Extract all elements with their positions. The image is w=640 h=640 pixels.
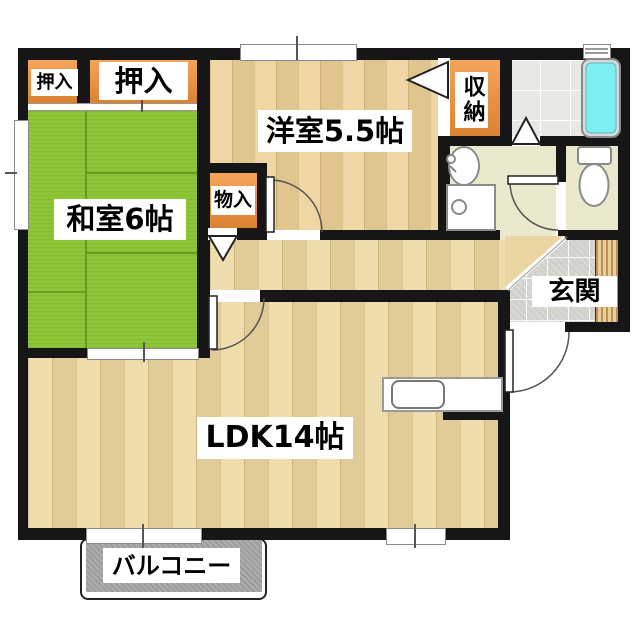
- wall-closet-divider: [77, 48, 90, 108]
- shuunou-doorway: [438, 58, 450, 136]
- hallway-floor: [210, 236, 505, 290]
- wall-washitsu-right: [197, 48, 210, 358]
- floor-plan: 押入 押入 和室6帖 洋室5.5帖 物入 収納 玄関 LDK14帖 バルコニー: [0, 0, 640, 640]
- wall-monoire-bottom: [237, 228, 267, 240]
- wall-washitsu-bottom: [18, 348, 87, 358]
- wall-toilet-bottom: [558, 230, 630, 240]
- label-balcony: バルコニー: [103, 548, 240, 583]
- toilet-doorway: [556, 182, 566, 230]
- window-top: [240, 44, 357, 61]
- tatami-line: [85, 252, 197, 254]
- label-oshiire-large: 押入: [99, 62, 188, 100]
- louver-window-bath: [583, 44, 611, 59]
- tatami-line: [85, 172, 197, 174]
- youshitsu-doorway: [267, 230, 320, 240]
- wall-shuunou-bath: [500, 48, 512, 146]
- window-left: [14, 120, 29, 230]
- label-shuunou: 収納: [455, 72, 488, 128]
- wall-toilet-left: [556, 143, 566, 182]
- label-oshiire-small: 押入: [31, 69, 78, 96]
- toilet-floor: [566, 146, 618, 230]
- label-washitsu: 和室6帖: [54, 199, 186, 240]
- wall-kitchen-stub: [443, 412, 502, 420]
- label-ldk: LDK14帖: [197, 417, 353, 459]
- window-balcony: [86, 528, 202, 544]
- entrance-doorway: [512, 322, 565, 332]
- ldk-doorway: [210, 290, 260, 302]
- washroom-floor: [450, 146, 556, 230]
- tatami-line: [28, 291, 85, 293]
- wall-outer-right: [618, 48, 630, 332]
- label-monoire: 物入: [211, 186, 255, 215]
- oshiire-sliding-door: [28, 103, 197, 111]
- wall-genkan-bottom: [565, 322, 630, 332]
- label-genkan: 玄関: [532, 276, 617, 307]
- bath-doorway: [512, 136, 540, 146]
- washitsu-ldk-sliding-door: [87, 348, 199, 360]
- monoire-doorway: [208, 228, 237, 240]
- washroom-passage: [500, 230, 556, 240]
- window-kitchen: [386, 528, 446, 545]
- wall-youshitsu-bottom: [320, 230, 500, 240]
- label-youshitsu: 洋室5.5帖: [258, 110, 412, 152]
- entrance-door-arc: [509, 332, 569, 392]
- bathroom-floor: [510, 60, 618, 136]
